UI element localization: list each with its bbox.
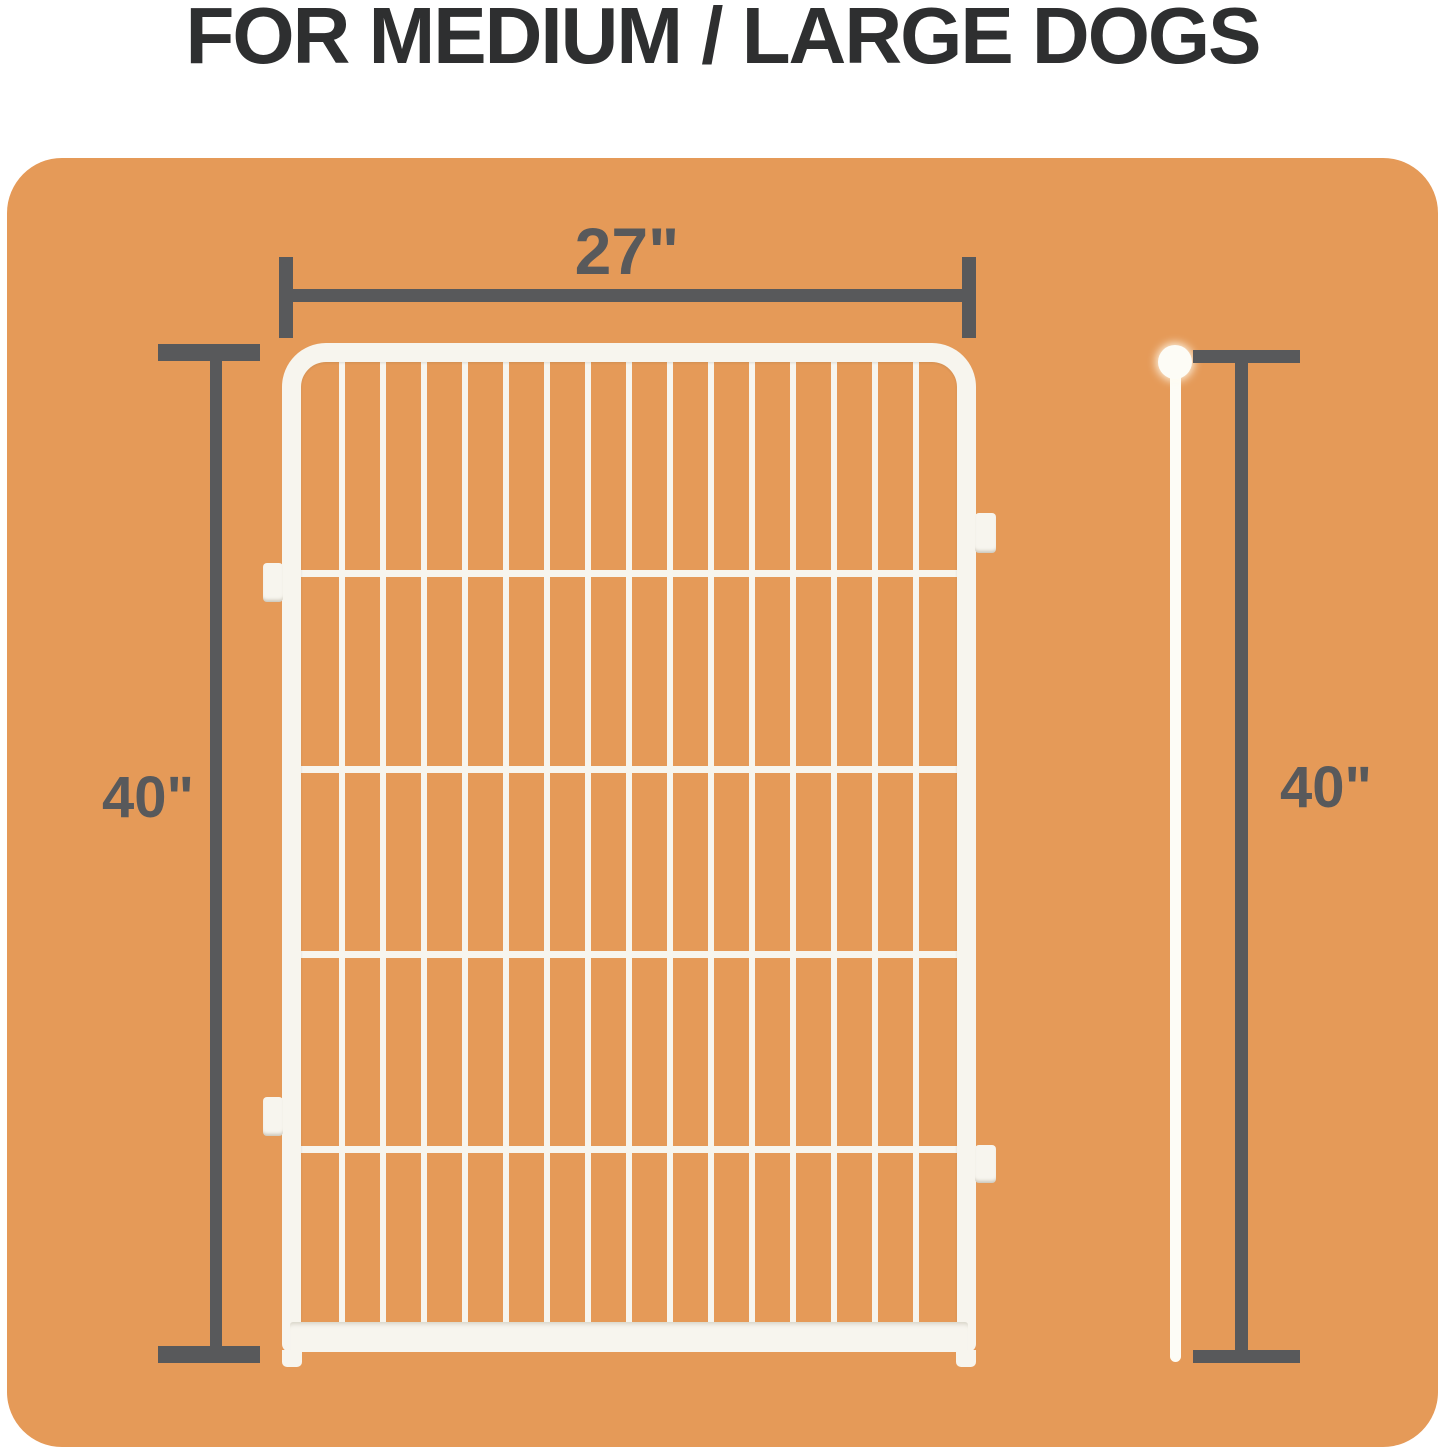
height-reference-pole bbox=[1170, 372, 1181, 1362]
fence-tab-left-upper bbox=[263, 563, 283, 602]
left-height-dimension-bottom-cap bbox=[158, 1346, 260, 1363]
infographic-canvas: FOR MEDIUM / LARGE DOGS 27" 40" 40" bbox=[0, 0, 1445, 1452]
fence-tab-left-lower bbox=[263, 1097, 283, 1136]
fence-frame bbox=[282, 343, 976, 1352]
width-dimension-right-cap bbox=[962, 257, 976, 338]
width-dimension-line bbox=[285, 289, 969, 302]
page-title: FOR MEDIUM / LARGE DOGS bbox=[0, 0, 1445, 79]
fence-foot-right bbox=[956, 1350, 976, 1367]
fence-tab-right-lower bbox=[975, 1145, 996, 1183]
fence-tab-right-upper bbox=[975, 513, 996, 553]
right-height-dimension-bottom-cap bbox=[1193, 1350, 1300, 1363]
left-height-dimension-line bbox=[210, 344, 222, 1363]
fence-foot-left bbox=[282, 1350, 302, 1367]
left-height-dimension-label: 40" bbox=[83, 768, 213, 828]
fence-bottom-bar bbox=[290, 1322, 968, 1352]
width-dimension-left-cap bbox=[279, 257, 293, 338]
left-height-dimension-top-cap bbox=[158, 344, 260, 361]
width-dimension-label: 27" bbox=[497, 218, 757, 284]
right-height-dimension-label: 40" bbox=[1261, 758, 1391, 818]
right-height-dimension-line bbox=[1235, 350, 1248, 1363]
height-reference-pole-cap bbox=[1158, 345, 1192, 379]
